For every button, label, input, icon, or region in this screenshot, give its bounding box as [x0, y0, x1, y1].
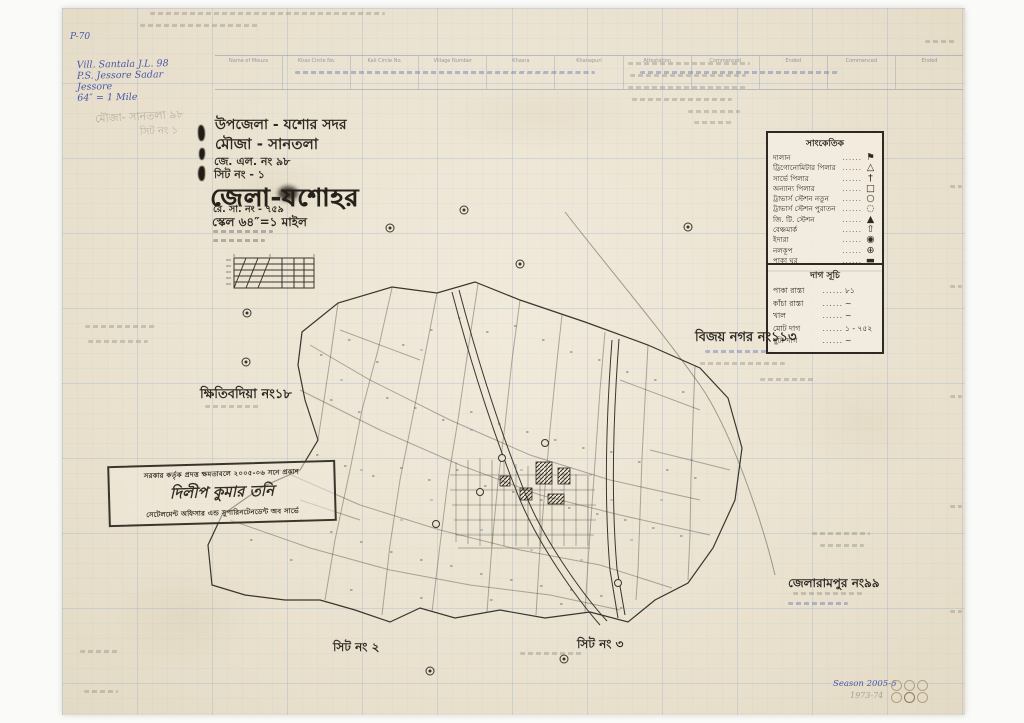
- neighbor-mouza-label-southeast: জেলারামপুর নং৯৯: [788, 575, 880, 595]
- punch-circle: [917, 680, 928, 691]
- sheet-2-label: সিট নং ২: [333, 639, 379, 659]
- neighbor-mouza-label-east: বিজয় নগর নং১১৩: [695, 328, 796, 349]
- settlement-officer-stamp: সরকার কর্তৃক প্রদত্ত ক্ষমতাবলে ২০০৫-০৬ স…: [107, 460, 337, 527]
- punch-circle: [917, 692, 928, 703]
- mouza-map-drawing: [0, 0, 1024, 723]
- punch-circle: [891, 680, 902, 691]
- neighbor-mouza-label-west: ক্ষিতিবদিয়া নং১৮: [200, 385, 292, 406]
- scanned-mouza-map-sheet: { "title_block": { "line1": "উপজেলা - যশ…: [0, 0, 1024, 723]
- season-note-blue: Season 2005-6: [833, 679, 897, 689]
- punch-circle: [904, 692, 915, 703]
- sheet-3-label: সিট নং ৩: [577, 636, 623, 656]
- punch-circle: [891, 692, 902, 703]
- punch-circle: [904, 680, 915, 691]
- season-note-pencil: 1973-74: [850, 691, 883, 700]
